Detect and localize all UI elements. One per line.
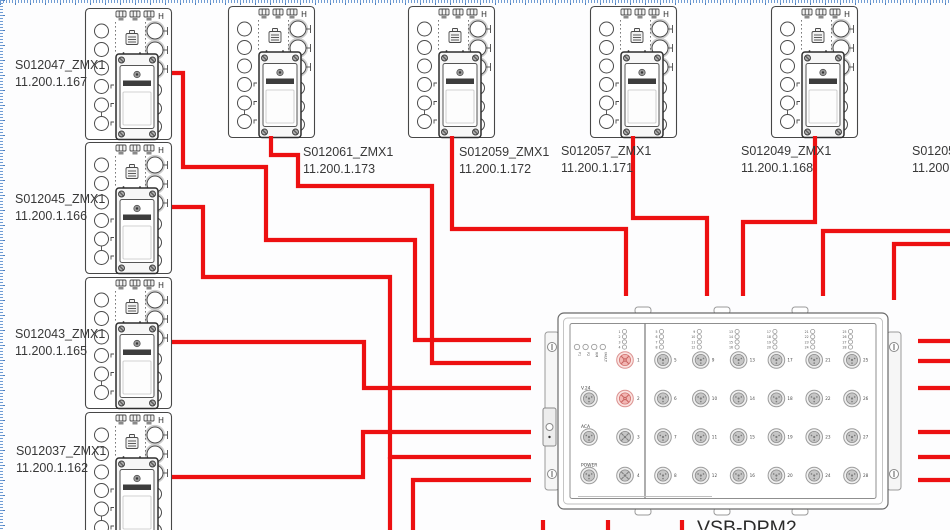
- value-label: H: [158, 281, 164, 290]
- device-name: S012059_ZMX1: [459, 145, 549, 159]
- hub-port-6[interactable]: [655, 390, 672, 407]
- value-label: 3: [637, 435, 640, 440]
- device-ip: 11.200.1: [912, 161, 950, 175]
- value-label: 17: [767, 330, 771, 334]
- value-label: 4: [637, 473, 640, 478]
- hub-port-25[interactable]: [844, 352, 861, 369]
- value-label: 15: [750, 435, 756, 440]
- value-label: 21: [825, 358, 831, 363]
- value-label: 26: [863, 396, 869, 401]
- value-label: 5: [655, 330, 657, 334]
- wire-right-top-a[interactable]: [823, 231, 950, 296]
- hub-port-v.24[interactable]: [581, 390, 598, 407]
- device-label-S012059_ZMX1: S012059_ZMX111.200.1.172: [459, 144, 549, 178]
- value-label: 11: [691, 340, 695, 344]
- value-label: H: [158, 12, 164, 21]
- ruler-left: [0, 0, 5, 530]
- value-label: H: [158, 416, 164, 425]
- value-label: 25: [842, 330, 846, 334]
- value-label: 13: [729, 330, 733, 334]
- hub-port-3[interactable]: [617, 429, 634, 446]
- value-label: 8: [674, 473, 677, 478]
- value-label: 13: [750, 358, 756, 363]
- hub-port-2[interactable]: [617, 390, 634, 407]
- hub-port-12[interactable]: [693, 467, 710, 484]
- hub-port-5[interactable]: [655, 352, 672, 369]
- value-label: 12: [712, 473, 718, 478]
- device-S012059_ZMX1[interactable]: H: [409, 7, 495, 138]
- top-connectors: [621, 9, 659, 19]
- top-connectors: [116, 11, 154, 21]
- hub-port-9[interactable]: [693, 352, 710, 369]
- device-name: S012061_ZMX1: [303, 145, 393, 159]
- hub-port-19[interactable]: [768, 429, 785, 446]
- module-body: [116, 458, 158, 530]
- device-S012057_ZMX1[interactable]: H: [591, 7, 677, 138]
- top-connectors: [116, 415, 154, 425]
- value-label: 20: [767, 346, 771, 350]
- value-label: 16: [750, 473, 756, 478]
- device-ip: 11.200.1.165: [15, 344, 87, 358]
- value-label: 12: [691, 346, 695, 350]
- value-label: 3: [618, 340, 620, 344]
- module-body: [116, 188, 158, 274]
- hub-port-21[interactable]: [806, 352, 823, 369]
- value-label: 28: [863, 473, 869, 478]
- value-label: 17: [787, 358, 793, 363]
- hub-port-7[interactable]: [655, 429, 672, 446]
- value-label: 11: [712, 435, 718, 440]
- hub-port-24[interactable]: [806, 467, 823, 484]
- device-label-S012037_ZMX1: S012037_ZMX111.200.1.162: [16, 443, 106, 477]
- value-label: 18: [787, 396, 793, 401]
- value-label: 19: [787, 435, 793, 440]
- wire-bottom-left-b[interactable]: [413, 480, 531, 530]
- hub-port-27[interactable]: [844, 429, 861, 446]
- value-label: 19: [767, 340, 771, 344]
- device-name: S012057_ZMX1: [561, 144, 651, 158]
- value-label: 22: [805, 335, 809, 339]
- device-S012061_ZMX1[interactable]: H: [229, 7, 315, 138]
- device-ip: 11.200.1.173: [303, 162, 375, 176]
- device-name: S012047_ZMX1: [15, 58, 105, 72]
- value-label: 14: [729, 335, 733, 339]
- value-label: 10: [691, 335, 695, 339]
- hub-port-20[interactable]: [768, 467, 785, 484]
- wire-S012045[interactable]: [172, 207, 531, 457]
- value-label: 5: [674, 358, 677, 363]
- value-label: 8: [655, 346, 657, 350]
- hub-port-13[interactable]: [730, 352, 747, 369]
- device-name: S012049_ZMX1: [741, 144, 831, 158]
- diagram-canvas: P1P2RMFAULT12341234V.24ACAPOWER567856789…: [0, 0, 950, 530]
- device-name: S012037_ZMX1: [16, 444, 106, 458]
- device-name: S012053: [912, 144, 950, 158]
- device-S012049_ZMX1[interactable]: H: [772, 7, 858, 138]
- hub-port-1[interactable]: [617, 352, 634, 369]
- value-label: 6: [655, 335, 657, 339]
- value-label: P2: [586, 352, 590, 356]
- device-label-S012045_ZMX1: S012045_ZMX111.200.1.166: [15, 191, 105, 225]
- device-label-S012043_ZMX1: S012043_ZMX111.200.1.165: [15, 326, 105, 360]
- hub-port-23[interactable]: [806, 429, 823, 446]
- value-label: 14: [750, 396, 756, 401]
- hub-port-26[interactable]: [844, 390, 861, 407]
- value-label: 24: [805, 346, 809, 350]
- value-label: H: [481, 10, 487, 19]
- value-label: FAULT: [603, 352, 607, 363]
- value-label: 22: [825, 396, 831, 401]
- value-label: 9: [712, 358, 715, 363]
- top-connectors: [439, 9, 477, 19]
- device-ip: 11.200.1.168: [741, 161, 813, 175]
- value-label: RM: [595, 352, 599, 357]
- value-label: 20: [787, 473, 793, 478]
- value-label: H: [663, 10, 669, 19]
- schematic-scene: P1P2RMFAULT12341234V.24ACAPOWER567856789…: [0, 0, 950, 530]
- value-label: 4: [618, 346, 620, 350]
- module-body: [259, 52, 301, 138]
- device-name: S012045_ZMX1: [15, 192, 105, 206]
- value-label: P1: [578, 352, 582, 356]
- device-ip: 11.200.1.167: [15, 75, 87, 89]
- hub-port-18[interactable]: [768, 390, 785, 407]
- value-label: 2: [637, 396, 640, 401]
- value-label: 1: [618, 330, 620, 334]
- hub-port-power[interactable]: [581, 467, 598, 484]
- value-label: 6: [674, 396, 677, 401]
- value-label: 27: [863, 435, 869, 440]
- device-label-S012049_ZMX1: S012049_ZMX111.200.1.168: [741, 143, 831, 177]
- hub-port-22[interactable]: [806, 390, 823, 407]
- module-body: [439, 52, 481, 138]
- module-body: [116, 323, 158, 409]
- hub-port-11[interactable]: [693, 429, 710, 446]
- module-body: [802, 52, 844, 138]
- hub-port-28[interactable]: [844, 467, 861, 484]
- wire-right-top-b[interactable]: [894, 244, 950, 300]
- hub-port-aca[interactable]: [581, 429, 598, 446]
- top-connectors: [259, 9, 297, 19]
- device-label-S012057_ZMX1: S012057_ZMX111.200.1.171: [561, 143, 651, 177]
- value-label: 15: [729, 340, 733, 344]
- value-label: 24: [825, 473, 831, 478]
- hub-port-10[interactable]: [693, 390, 710, 407]
- top-connectors: [116, 280, 154, 290]
- value-label: 27: [842, 340, 846, 344]
- value-label: 23: [805, 340, 809, 344]
- hub-port-4[interactable]: [617, 467, 634, 484]
- device-label-S012061_ZMX1: S012061_ZMX111.200.1.173: [303, 144, 393, 178]
- hub-title: VSB-DPM2: [697, 517, 797, 530]
- device-ip: 11.200.1.171: [561, 161, 633, 175]
- value-label: H: [158, 146, 164, 155]
- hub-port-16[interactable]: [730, 467, 747, 484]
- value-label: H: [844, 10, 850, 19]
- value-label: 16: [729, 346, 733, 350]
- device-name: S012043_ZMX1: [15, 327, 105, 341]
- value-label: 10: [712, 396, 718, 401]
- hub-port-14[interactable]: [730, 390, 747, 407]
- device-ip: 11.200.1.172: [459, 162, 531, 176]
- value-label: 23: [825, 435, 831, 440]
- value-label: 18: [767, 335, 771, 339]
- value-label: 25: [863, 358, 869, 363]
- value-label: 28: [842, 346, 846, 350]
- module-body: [621, 52, 663, 138]
- value-label: 21: [805, 330, 809, 334]
- wire-S012037[interactable]: [172, 432, 531, 477]
- hub-port-8[interactable]: [655, 467, 672, 484]
- top-connectors: [116, 145, 154, 155]
- device-label-S012053: S01205311.200.1: [912, 143, 950, 177]
- hub-port-15[interactable]: [730, 429, 747, 446]
- device-ip: 11.200.1.166: [15, 209, 87, 223]
- ruler-top: [0, 0, 950, 5]
- value-label: H: [301, 10, 307, 19]
- device-ip: 11.200.1.162: [16, 461, 88, 475]
- top-connectors: [802, 9, 840, 19]
- value-label: 9: [693, 330, 695, 334]
- value-label: 2: [618, 335, 620, 339]
- value-label: 7: [655, 340, 657, 344]
- device-label-S012047_ZMX1: S012047_ZMX111.200.1.167: [15, 57, 105, 91]
- value-label: 1: [637, 358, 640, 363]
- module-body: [116, 54, 158, 140]
- hub-port-17[interactable]: [768, 352, 785, 369]
- hub-vsb-dpm2[interactable]: P1P2RMFAULT12341234V.24ACAPOWER567856789…: [543, 307, 901, 515]
- value-label: 7: [674, 435, 677, 440]
- value-label: 26: [842, 335, 846, 339]
